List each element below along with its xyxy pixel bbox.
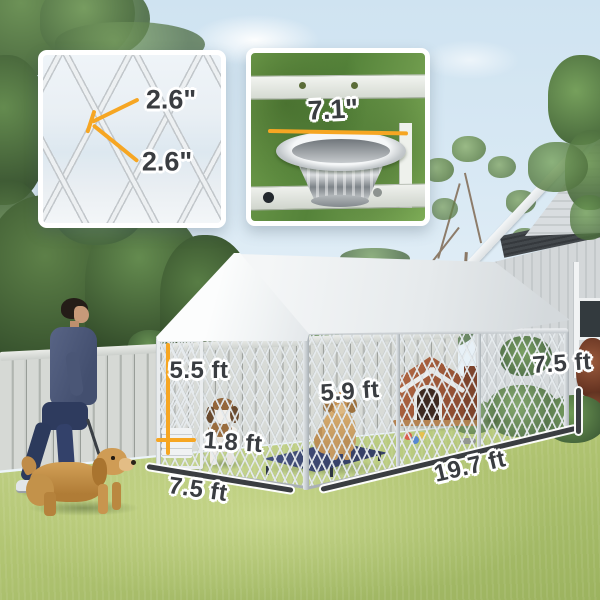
spaniel-leg [44, 492, 56, 516]
cocker-spaniel [18, 446, 143, 518]
interior-height-label: 5.9 ft [320, 378, 381, 406]
house-window [577, 298, 600, 340]
rail-screw [299, 82, 306, 89]
rail-screw [351, 82, 358, 89]
door-height-label: 5.5 ft [169, 359, 228, 383]
height-line [576, 388, 581, 434]
steel-bowl-inner [292, 139, 390, 163]
spaniel-eye [111, 456, 115, 460]
mesh-detail-inset: 2.6" 2.6" [38, 50, 226, 228]
kennel-post [396, 332, 400, 467]
door-width-line [156, 438, 196, 442]
tree-foliage [570, 195, 600, 240]
total-height-label: 7.5 ft [532, 350, 593, 378]
door-width-label: 1.8 ft [203, 429, 264, 457]
rail-bolt [373, 188, 382, 197]
mesh-measure-bottom-label: 2.6" [142, 149, 192, 176]
bowl-diameter-label: 7.1" [307, 95, 359, 125]
spaniel-leg [112, 482, 121, 510]
mesh-detail-pattern [38, 50, 226, 228]
bowl-detail-inset: 7.1" [246, 48, 430, 226]
product-scene: 5.5 ft 1.8 ft 7.5 ft 5.9 ft 19.7 ft 7.5 … [0, 0, 600, 600]
kennel-post [564, 331, 569, 430]
spaniel-ear [92, 458, 107, 486]
mesh-measure-top-label: 2.6" [146, 87, 196, 114]
rail-knob [263, 192, 274, 203]
steel-bowl-base [311, 195, 369, 207]
kennel-post [477, 332, 481, 449]
kennel-post [303, 332, 309, 490]
spaniel-leg [98, 484, 108, 514]
cloud [420, 40, 520, 80]
spaniel-nose [131, 460, 136, 465]
